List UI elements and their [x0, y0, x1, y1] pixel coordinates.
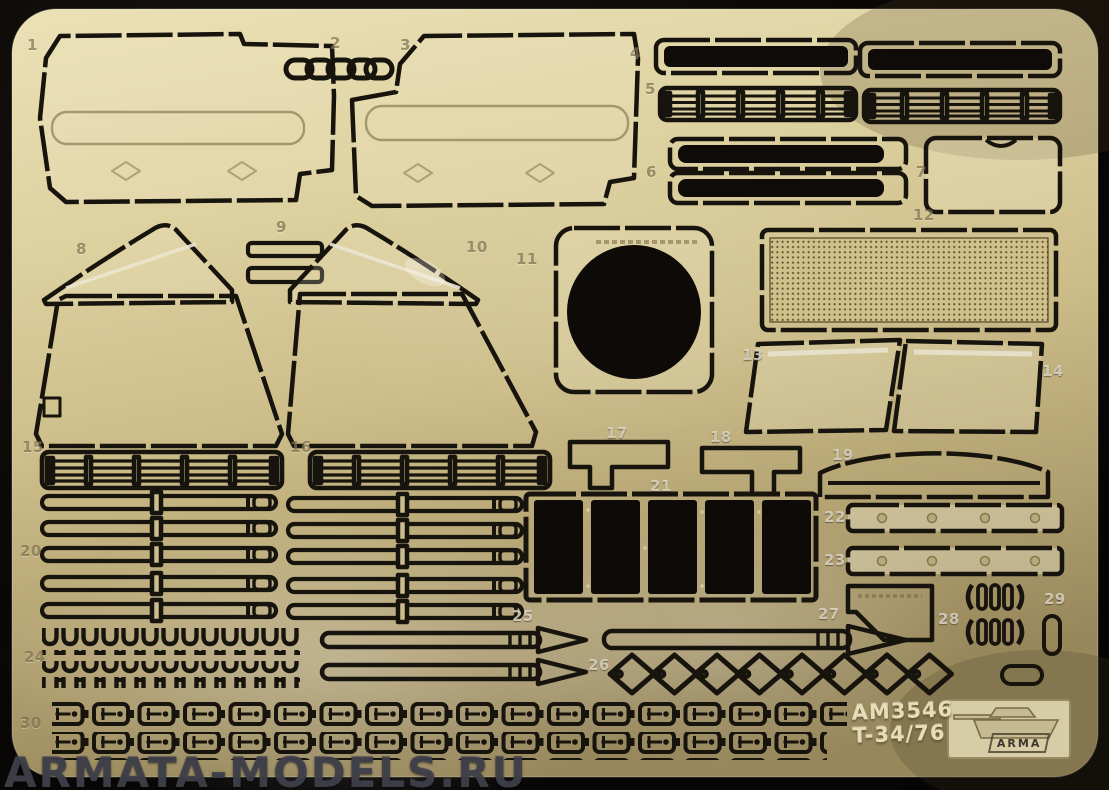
part-number-6: 6: [646, 163, 657, 181]
sheet-subject: T-34/76: [852, 721, 954, 748]
sheet-code: AM3546 T-34/76: [851, 698, 954, 748]
part-21-grid: [526, 494, 816, 600]
part-6-strips: [670, 139, 906, 203]
part-11-circle-plate: [556, 228, 712, 392]
part-7-plate: [926, 138, 1060, 212]
part-number-15: 15: [22, 438, 44, 456]
part-number-13: 13: [742, 346, 764, 364]
part-13-plate: [746, 340, 900, 432]
part-number-8: 8: [76, 240, 87, 258]
part-number-9: 9: [276, 218, 287, 236]
part-number-28: 28: [938, 610, 960, 628]
part-number-24: 24: [24, 648, 46, 666]
part-number-18: 18: [710, 428, 732, 446]
part-number-30: 30: [20, 714, 42, 732]
part-number-21: 21: [650, 477, 672, 495]
part-number-23: 23: [824, 551, 846, 569]
part-number-5: 5: [645, 80, 656, 98]
part-number-20: 20: [20, 542, 42, 560]
part-12-mesh: [762, 230, 1056, 330]
part-number-3: 3: [400, 36, 411, 54]
part-number-12: 12: [913, 206, 935, 224]
part-22-strip: [848, 505, 1062, 531]
part-number-11: 11: [516, 250, 538, 268]
part-number-4: 4: [630, 44, 641, 62]
part-number-2: 2: [330, 34, 341, 52]
part-number-25: 25: [512, 607, 534, 625]
part-number-27: 27: [818, 605, 840, 623]
part-number-26: 26: [588, 656, 610, 674]
pe-fret-sheet: [0, 0, 1109, 790]
part-number-16: 16: [290, 438, 312, 456]
part-number-7: 7: [916, 163, 927, 181]
part-number-19: 19: [832, 446, 854, 464]
part-number-17: 17: [606, 424, 628, 442]
part-23-strip: [848, 548, 1062, 574]
photo-pe-fret: 1 2 3 4 5 6 7 8 9 10 11 12 13 14 15 16 1…: [0, 0, 1109, 790]
part-number-14: 14: [1042, 362, 1064, 380]
part-number-22: 22: [824, 508, 846, 526]
part-number-29: 29: [1044, 590, 1066, 608]
part-number-1: 1: [27, 36, 38, 54]
watermark: ARMATA-MODELS.RU: [4, 748, 1104, 790]
part-number-10: 10: [466, 238, 488, 256]
part-14-plate: [894, 341, 1042, 432]
